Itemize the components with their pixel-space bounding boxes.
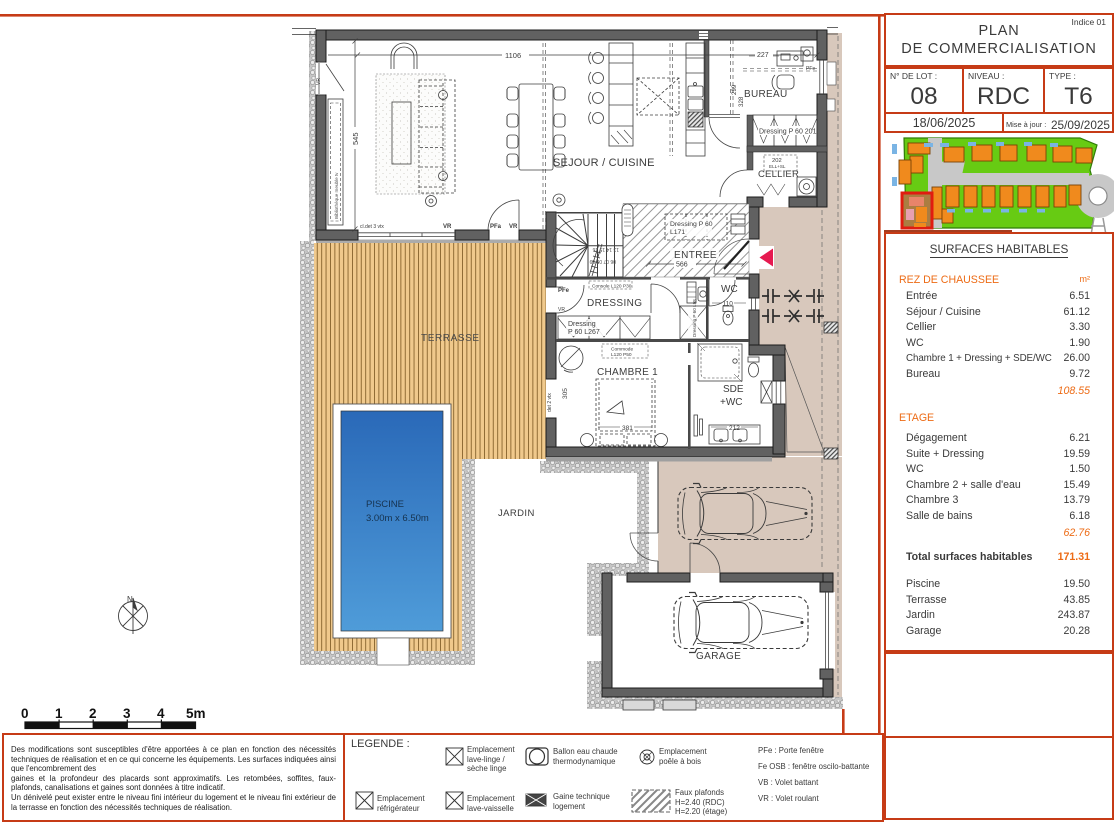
svg-text:5m: 5m xyxy=(186,706,206,721)
svg-text:328: 328 xyxy=(738,96,745,107)
svg-text:VR: VR xyxy=(316,78,322,85)
svg-text:+WC: +WC xyxy=(720,397,743,408)
svg-text:PFa: PFa xyxy=(490,224,502,230)
svg-text:cl.det 3 vtx: cl.det 3 vtx xyxy=(360,224,384,230)
svg-text:3.00m x 6.50m: 3.00m x 6.50m xyxy=(366,513,429,524)
svg-text:Console L120 P30: Console L120 P30 xyxy=(592,284,632,290)
svg-text:2: 2 xyxy=(89,706,97,721)
svg-text:Bibliothèque meuble tv: Bibliothèque meuble tv xyxy=(334,172,339,219)
svg-text:P 60 L267: P 60 L267 xyxy=(568,329,600,336)
svg-text:Dressing P 60 L98: Dressing P 60 L98 xyxy=(692,299,697,337)
svg-text:566: 566 xyxy=(676,262,688,269)
svg-text:VR: VR xyxy=(558,307,565,313)
svg-text:3: 3 xyxy=(123,706,131,721)
svg-text:SEJOUR / CUISINE: SEJOUR / CUISINE xyxy=(553,157,655,169)
svg-text:BUREAU: BUREAU xyxy=(744,89,787,100)
svg-text:212: 212 xyxy=(729,425,740,432)
svg-text:det 2 vtx: det 2 vtx xyxy=(547,393,553,412)
svg-text:305: 305 xyxy=(562,388,569,399)
svg-text:N: N xyxy=(127,595,133,604)
svg-text:Dressing P 60: Dressing P 60 xyxy=(670,221,713,228)
svg-text:06 07 08 09: 06 07 08 09 xyxy=(589,258,616,264)
svg-text:JARDIN: JARDIN xyxy=(498,508,535,519)
svg-text:0: 0 xyxy=(21,706,29,721)
svg-text:L171: L171 xyxy=(670,229,685,236)
svg-text:GARAGE: GARAGE xyxy=(696,651,741,662)
svg-text:SDE: SDE xyxy=(723,384,744,395)
svg-text:1106: 1106 xyxy=(505,51,521,60)
svg-text:VR: VR xyxy=(443,224,452,230)
svg-text:545: 545 xyxy=(351,132,360,145)
svg-text:CHAMBRE 1: CHAMBRE 1 xyxy=(597,367,658,378)
svg-text:Dressing: Dressing xyxy=(568,321,596,328)
svg-text:299: 299 xyxy=(731,84,738,95)
svg-text:VR: VR xyxy=(509,224,518,230)
svg-text:PFe: PFe xyxy=(806,66,815,72)
svg-text:WC: WC xyxy=(721,284,738,295)
svg-text:13 14 15 16: 13 14 15 16 xyxy=(592,246,619,252)
svg-text:381: 381 xyxy=(622,425,633,432)
svg-text:DRESSING: DRESSING xyxy=(587,298,642,309)
svg-text:1: 1 xyxy=(55,706,63,721)
svg-text:4: 4 xyxy=(157,706,165,721)
svg-text:CELLIER: CELLIER xyxy=(758,169,799,180)
svg-text:PFe: PFe xyxy=(558,288,570,294)
svg-text:227: 227 xyxy=(757,52,769,59)
svg-text:Dressing P 60 201: Dressing P 60 201 xyxy=(759,129,817,136)
svg-text:PISCINE: PISCINE xyxy=(366,499,404,510)
svg-text:L120 P50: L120 P50 xyxy=(611,352,632,358)
svg-text:TERRASSE: TERRASSE xyxy=(421,333,480,344)
svg-text:110: 110 xyxy=(723,301,734,308)
svg-text:Commode: Commode xyxy=(611,347,633,353)
